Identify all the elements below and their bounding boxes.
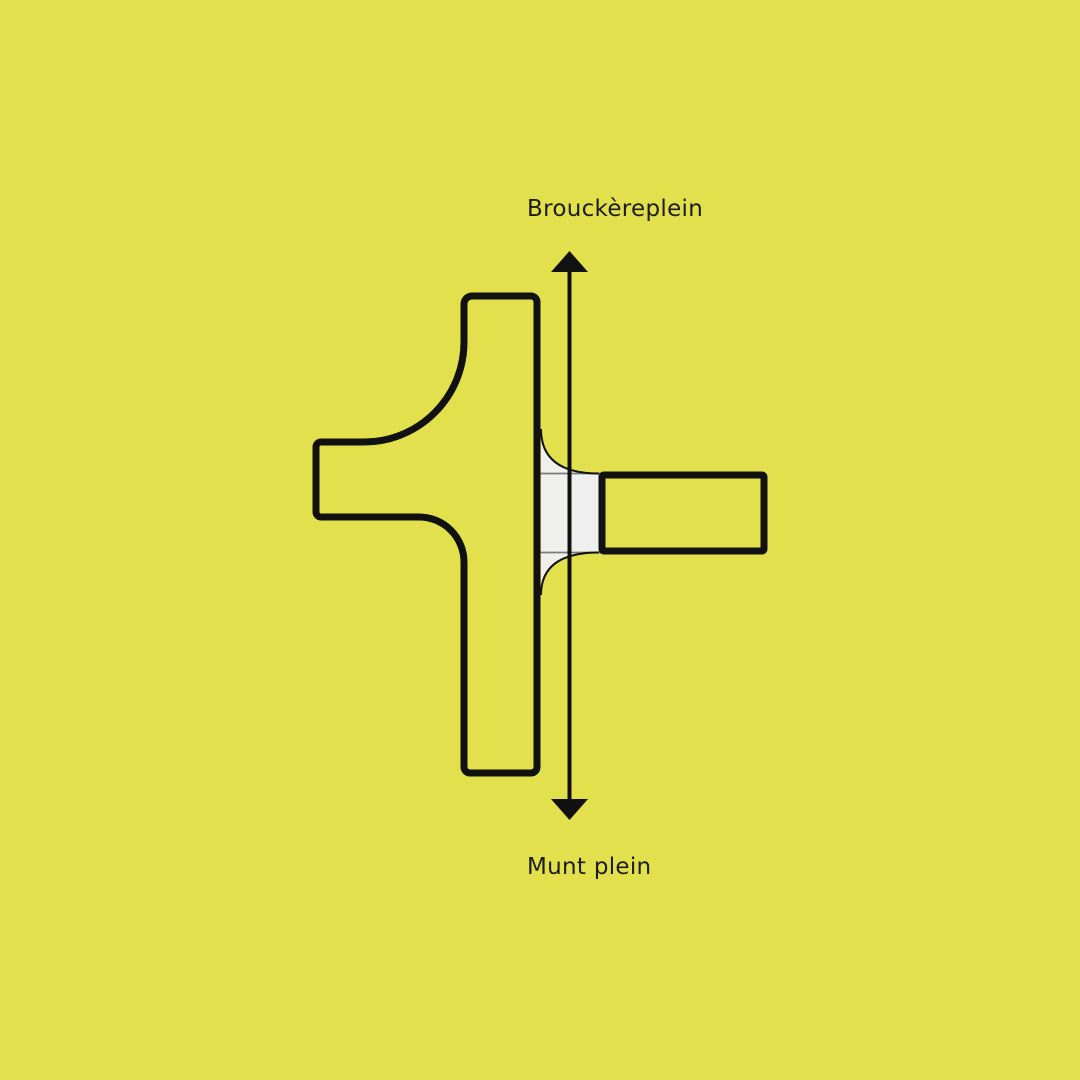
label-munt-plein: Munt plein [527, 854, 651, 880]
arrowhead-up-icon [551, 251, 588, 272]
east-road-shape [602, 475, 764, 551]
arrowhead-down-icon [551, 799, 588, 820]
intersection-diagram: Brouckèreplein Munt plein [0, 0, 1080, 1080]
north-south-road-shape [316, 296, 537, 773]
label-brouckereplein: Brouckèreplein [527, 196, 703, 222]
diagram-canvas [0, 0, 1080, 1080]
